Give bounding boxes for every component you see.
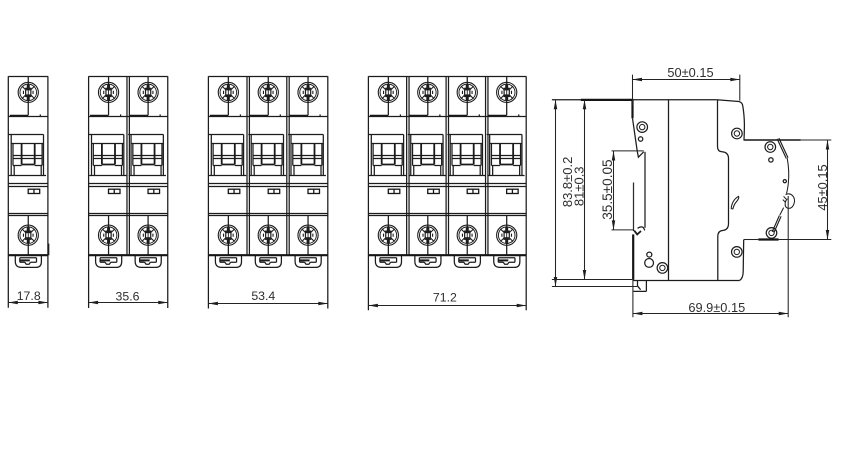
svg-text:53.4: 53.4 xyxy=(251,289,275,303)
svg-text:69.9±0.15: 69.9±0.15 xyxy=(688,300,745,315)
svg-text:35.6: 35.6 xyxy=(116,290,140,304)
svg-text:71.2: 71.2 xyxy=(433,291,457,305)
svg-text:45±0.15: 45±0.15 xyxy=(815,164,830,210)
svg-text:35.5±0.05: 35.5±0.05 xyxy=(600,159,615,219)
svg-text:81±0.3: 81±0.3 xyxy=(571,166,586,206)
svg-text:50±0.15: 50±0.15 xyxy=(667,65,713,80)
svg-text:17.8: 17.8 xyxy=(17,289,41,303)
